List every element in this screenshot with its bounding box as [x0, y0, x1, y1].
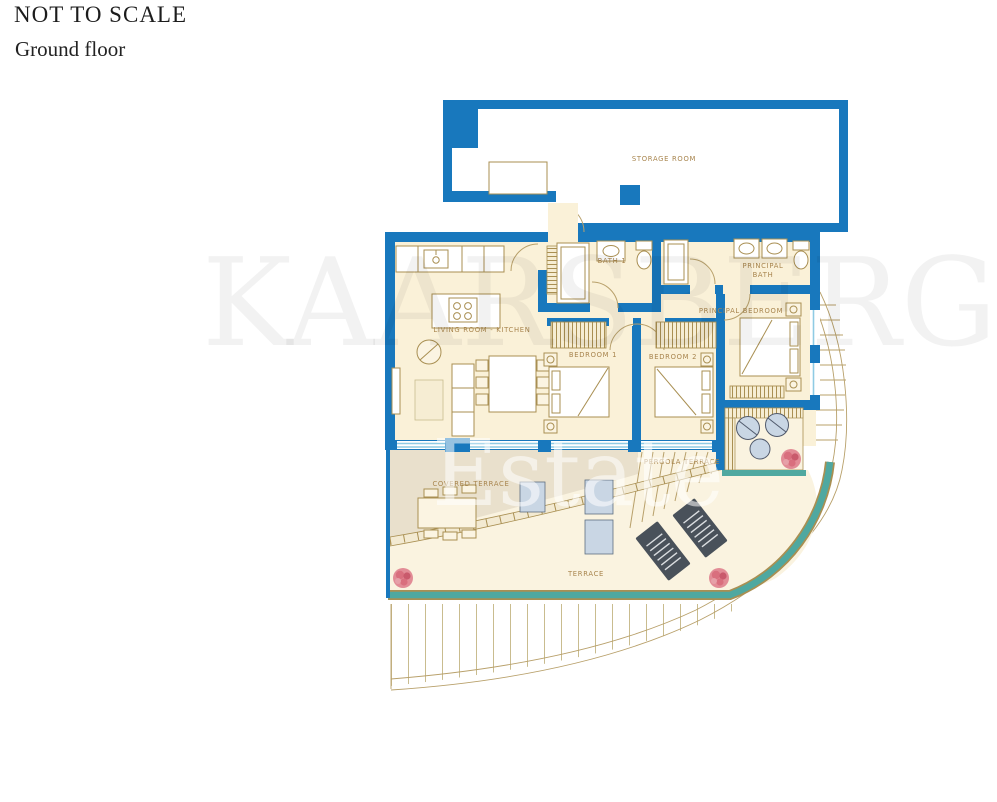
floorplan-drawing: STORAGE ROOM BATH 1 PRINCIPAL BATH PRINC… [0, 0, 997, 802]
nook-edge [722, 470, 806, 476]
plant-icon [393, 568, 413, 588]
watermark-brand: KAARSBERG [202, 232, 997, 374]
rug [415, 380, 443, 420]
storage-closet [489, 162, 547, 194]
storage-room [443, 100, 848, 232]
wall-corner-block [443, 100, 478, 148]
plant-icon [781, 449, 801, 469]
watermark-estate: Estate [432, 420, 724, 527]
plant-icon [709, 568, 729, 588]
bed [549, 367, 609, 417]
label-terrace: TERRACE [567, 570, 604, 578]
pillar [620, 185, 640, 205]
pergola-nook [722, 408, 806, 476]
wardrobe [730, 386, 784, 398]
bed [655, 367, 713, 417]
tv-unit [392, 368, 400, 414]
bistro-table [750, 439, 770, 459]
floorplan-page: NOT TO SCALE Ground floor [0, 0, 997, 802]
label-storage-room: STORAGE ROOM [632, 155, 696, 163]
